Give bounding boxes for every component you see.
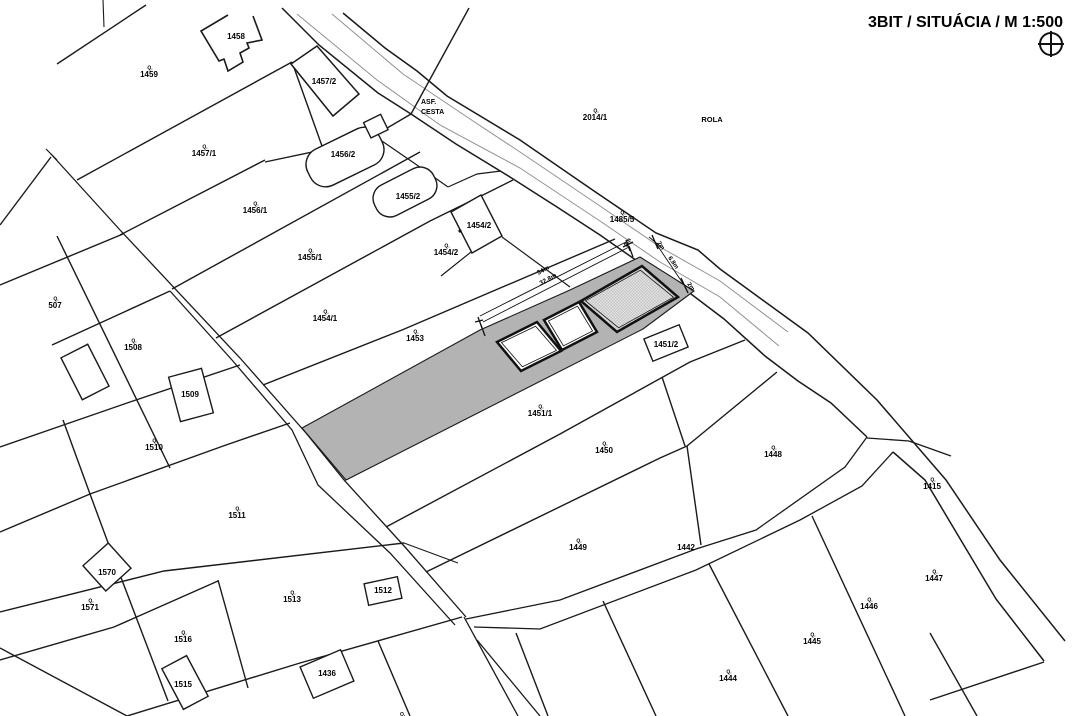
svg-text:1508: 1508 [124, 343, 142, 352]
svg-text:1570: 1570 [98, 568, 116, 577]
svg-text:1446: 1446 [860, 602, 878, 611]
svg-text:1448: 1448 [764, 450, 782, 459]
svg-text:1454/1: 1454/1 [313, 314, 338, 323]
svg-text:1454/2: 1454/2 [434, 248, 459, 257]
svg-text:1450: 1450 [595, 446, 613, 455]
svg-text:ASF.: ASF. [421, 99, 436, 106]
svg-text:507: 507 [48, 301, 62, 310]
svg-text:2014/1: 2014/1 [583, 113, 608, 122]
svg-text:Q.: Q. [400, 712, 406, 716]
svg-text:1516: 1516 [174, 635, 192, 644]
svg-text:CESTA: CESTA [421, 109, 444, 116]
svg-text:1436: 1436 [318, 669, 336, 678]
svg-text:1485/5: 1485/5 [610, 215, 635, 224]
svg-text:1455/1: 1455/1 [298, 253, 323, 262]
svg-text:1571: 1571 [81, 603, 99, 612]
svg-text:1510: 1510 [145, 443, 163, 452]
svg-text:1459: 1459 [140, 70, 158, 79]
svg-text:1455/2: 1455/2 [396, 192, 421, 201]
svg-text:1415: 1415 [923, 482, 941, 491]
svg-text:1444: 1444 [719, 674, 737, 683]
svg-text:3BIT / SITUÁCIA / M 1:500: 3BIT / SITUÁCIA / M 1:500 [868, 12, 1063, 31]
svg-text:1456/2: 1456/2 [331, 150, 356, 159]
svg-text:1509: 1509 [181, 390, 199, 399]
svg-text:1458: 1458 [227, 32, 245, 41]
svg-text:1451/2: 1451/2 [654, 340, 679, 349]
svg-text:1511: 1511 [228, 511, 246, 520]
svg-text:1457/1: 1457/1 [192, 149, 217, 158]
svg-text:1454/2: 1454/2 [467, 221, 492, 230]
svg-text:1445: 1445 [803, 637, 821, 646]
svg-text:1515: 1515 [174, 680, 192, 689]
svg-text:1512: 1512 [374, 586, 392, 595]
svg-text:1449: 1449 [569, 543, 587, 552]
svg-text:1456/1: 1456/1 [243, 206, 268, 215]
svg-text:1457/2: 1457/2 [312, 77, 337, 86]
svg-text:1442: 1442 [677, 543, 695, 552]
svg-text:1453: 1453 [406, 334, 424, 343]
svg-text:ROLA: ROLA [701, 115, 723, 124]
svg-text:1451/1: 1451/1 [528, 409, 553, 418]
svg-text:1513: 1513 [283, 595, 301, 604]
svg-text:1447: 1447 [925, 574, 943, 583]
